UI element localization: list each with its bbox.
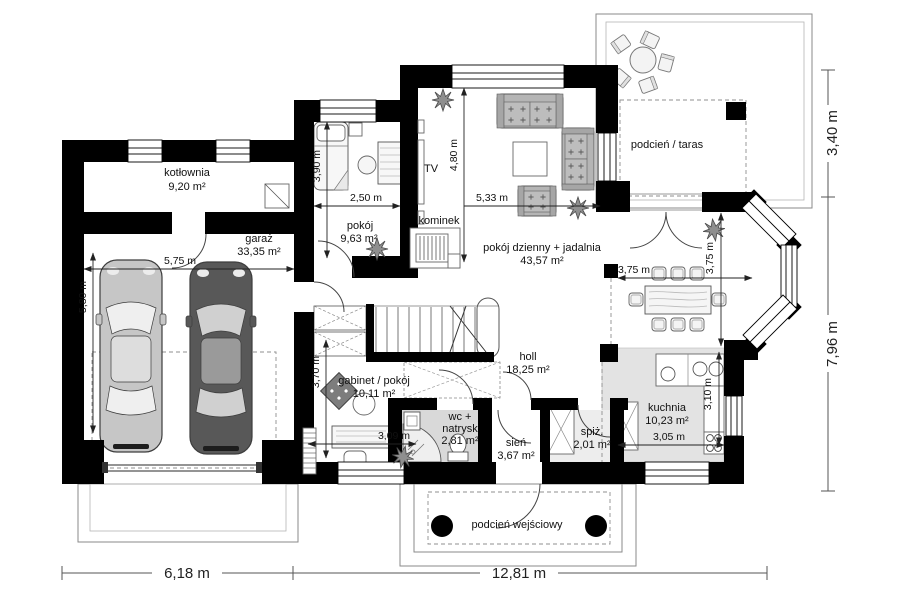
car-dark [186, 262, 256, 454]
dim-kitchen-height: 3,10 m [702, 378, 714, 410]
room-area-wc: 2,81 m² [441, 435, 479, 447]
french-door-arc [666, 212, 702, 248]
room-label-kotlownia: kotłownia [164, 167, 211, 179]
dim-overall-left: 6,18 m [164, 565, 210, 582]
dim-bedroom-height: 3,90 m [311, 150, 323, 182]
room-label-wc-1: wc + [448, 411, 472, 423]
dim-overall-right: 12,81 m [492, 565, 546, 582]
french-door-arc [630, 212, 666, 248]
dim-overall-bottom-right: 7,96 m [824, 321, 841, 367]
dining-chair [671, 318, 685, 331]
room-area-holl: 18,25 m² [506, 364, 550, 376]
dim-living-height: 4,80 m [448, 139, 460, 171]
room-area-spiz: 2,01 m² [573, 439, 611, 451]
dim-dining-height: 3,75 m [704, 242, 716, 274]
dim-living-width: 5,33 m [476, 192, 508, 204]
floor-plan-page: 5,75 m 5,80 m 3,90 m 2,50 m 4,80 m 5,33 … [0, 0, 901, 601]
boiler-room-contents [265, 184, 289, 208]
room-area-pokoj: 9,63 m² [340, 233, 378, 245]
stove [704, 432, 724, 454]
dim-office-width: 3,09 m [378, 430, 410, 442]
wardrobe-closet [314, 332, 366, 356]
radiator [303, 428, 316, 474]
window [598, 133, 616, 181]
window [320, 100, 376, 122]
garage-contents [92, 260, 276, 468]
dining-chair [690, 318, 704, 331]
stair-handrail [477, 298, 499, 358]
room-area-kuchnia: 10,23 m² [645, 415, 689, 427]
living-room-furniture [497, 94, 594, 216]
car-light [96, 260, 166, 452]
room-area-sien: 3,67 m² [497, 450, 535, 462]
room-label-kuchnia: kuchnia [648, 402, 687, 414]
room-label-holl: holl [519, 351, 536, 363]
fireplace-annotation: kominek [419, 215, 460, 227]
garage-driveway [78, 484, 298, 542]
porch-column [431, 515, 453, 537]
armchair [518, 186, 556, 216]
porch-column [585, 515, 607, 537]
room-label-gabinet: gabinet / pokój [338, 375, 410, 387]
room-label-garaz: garaż [245, 233, 273, 245]
tv-annotation: TV [424, 163, 439, 175]
room-label-terrace: podcień / taras [631, 139, 704, 151]
nightstand [349, 123, 362, 136]
dim-overall-top-right: 3,40 m [824, 110, 841, 156]
coffee-table [513, 142, 547, 176]
wardrobe-closet [314, 306, 366, 330]
door-arc [503, 372, 531, 400]
floor-plan-drawing: 5,75 m 5,80 m 3,90 m 2,50 m 4,80 m 5,33 … [0, 0, 901, 601]
fireplace [410, 228, 460, 268]
room-label-sien: sień [506, 437, 526, 449]
terrace-column [726, 102, 746, 120]
window [645, 462, 709, 484]
dim-office-height: 3,70 m [310, 356, 322, 388]
sofa-top [497, 94, 563, 128]
window [726, 396, 742, 436]
room-label-spiz: spiż. [581, 426, 604, 438]
room-area-kotlownia: 9,20 m² [168, 181, 206, 193]
room-area-living: 43,57 m² [520, 255, 564, 267]
dim-bedroom-width: 2,50 m [350, 192, 382, 204]
room-area-garaz: 33,35 m² [237, 246, 281, 258]
sink [404, 412, 420, 430]
window [216, 140, 250, 162]
window [338, 462, 404, 484]
dim-kitchen-width: 3,05 m [653, 431, 685, 443]
window [452, 65, 564, 88]
dim-garage-width: 5,75 m [164, 255, 196, 267]
dining-chair [652, 318, 666, 331]
dining-chair [712, 293, 726, 306]
room-label-living: pokój dzienny + jadalnia [483, 242, 602, 254]
room-area-gabinet: 10,11 m² [353, 388, 396, 400]
garage-door [102, 462, 262, 473]
terrace [596, 14, 812, 208]
room-label-wc-2: natrysk [442, 423, 478, 435]
sofa-right [562, 128, 594, 190]
room-label-entrance-porch: podcień wejściowy [471, 519, 563, 531]
understair-closet [404, 362, 500, 398]
dining-furniture [629, 267, 726, 331]
hall-wardrobe [548, 404, 574, 454]
dim-dining-width: 3,75 m [618, 264, 650, 276]
door-arc [318, 241, 354, 277]
bay-window [742, 194, 797, 349]
desk-chair [358, 156, 376, 174]
window [128, 140, 162, 162]
dim-garage-height: 5,80 m [77, 281, 89, 313]
door-arc [439, 370, 473, 404]
plant [702, 218, 727, 243]
stairs [370, 298, 499, 358]
dining-chair [629, 293, 643, 306]
terrace-table-set [611, 31, 675, 94]
room-label-pokoj: pokój [347, 220, 373, 232]
plant [432, 89, 454, 111]
toilet-tank [448, 452, 468, 461]
plant [567, 197, 589, 219]
